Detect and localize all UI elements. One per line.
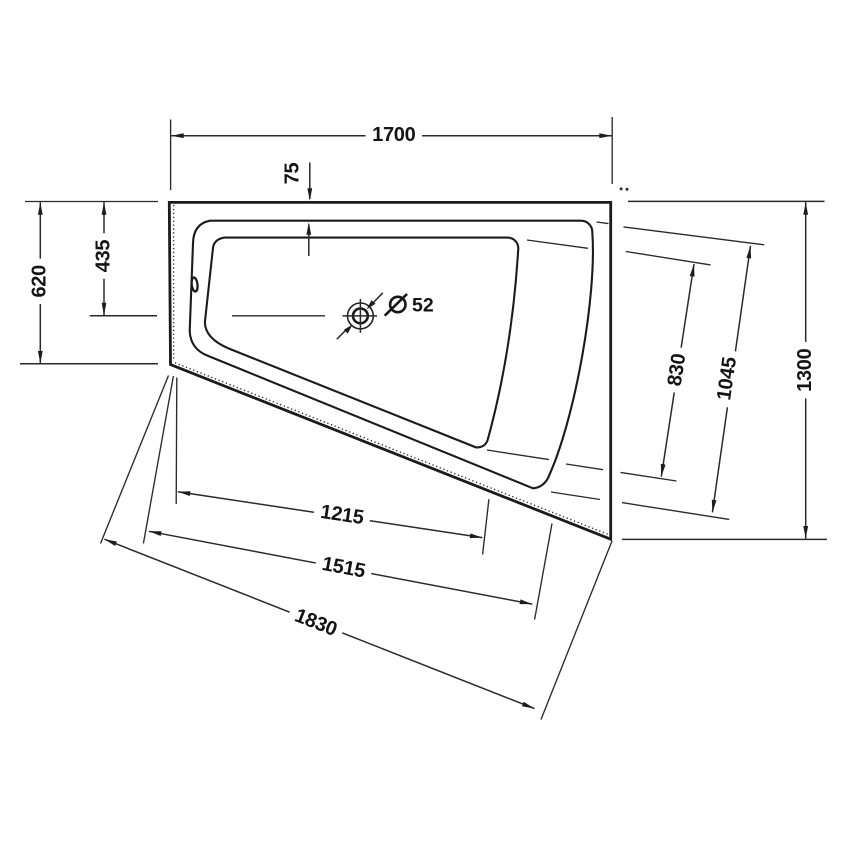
svg-text:435: 435	[92, 240, 114, 273]
svg-text:52: 52	[412, 295, 434, 317]
svg-text:75: 75	[282, 163, 304, 185]
svg-text:620: 620	[29, 265, 51, 298]
svg-text:1700: 1700	[372, 124, 415, 146]
svg-text:1300: 1300	[794, 348, 816, 391]
